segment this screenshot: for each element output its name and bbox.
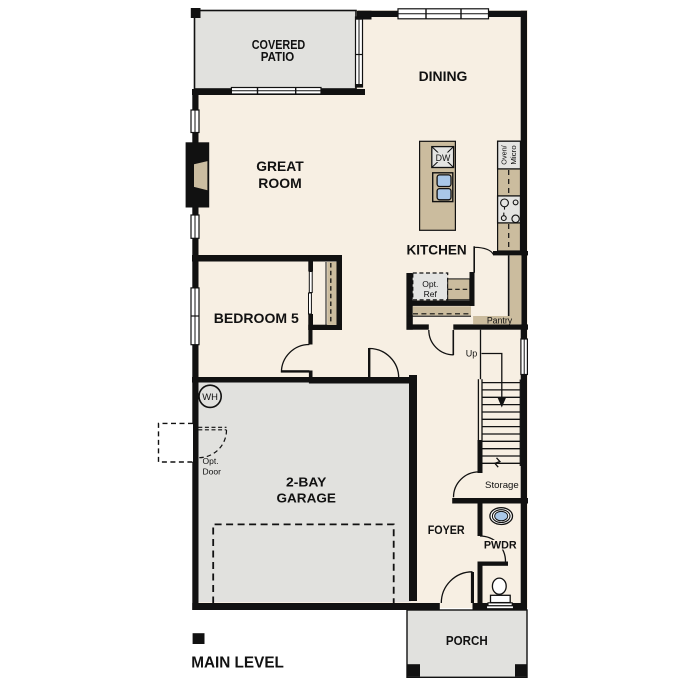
svg-text:Door: Door — [203, 466, 222, 476]
svg-text:Opt.: Opt. — [422, 279, 438, 289]
svg-text:PORCH: PORCH — [446, 634, 488, 648]
svg-text:ROOM: ROOM — [258, 175, 301, 191]
svg-text:2-BAY: 2-BAY — [286, 475, 327, 490]
svg-text:Up: Up — [466, 349, 478, 359]
svg-text:GREAT: GREAT — [256, 158, 304, 174]
svg-text:Storage: Storage — [485, 480, 519, 491]
svg-text:Ref: Ref — [424, 289, 438, 299]
svg-text:GARAGE: GARAGE — [277, 491, 337, 506]
svg-text:Pantry: Pantry — [487, 315, 513, 325]
svg-text:Oven/: Oven/ — [499, 144, 508, 164]
svg-text:KITCHEN: KITCHEN — [406, 242, 466, 258]
svg-text:WH: WH — [202, 392, 218, 402]
svg-text:PATIO: PATIO — [261, 50, 295, 64]
svg-text:PWDR: PWDR — [484, 539, 517, 551]
svg-text:Opt.: Opt. — [203, 456, 219, 466]
svg-text:DW: DW — [436, 153, 451, 163]
svg-text:BEDROOM 5: BEDROOM 5 — [214, 310, 299, 326]
svg-text:FOYER: FOYER — [428, 525, 466, 537]
svg-text:Micro: Micro — [509, 145, 518, 164]
svg-text:DINING: DINING — [419, 68, 468, 84]
svg-text:MAIN LEVEL: MAIN LEVEL — [191, 655, 284, 672]
